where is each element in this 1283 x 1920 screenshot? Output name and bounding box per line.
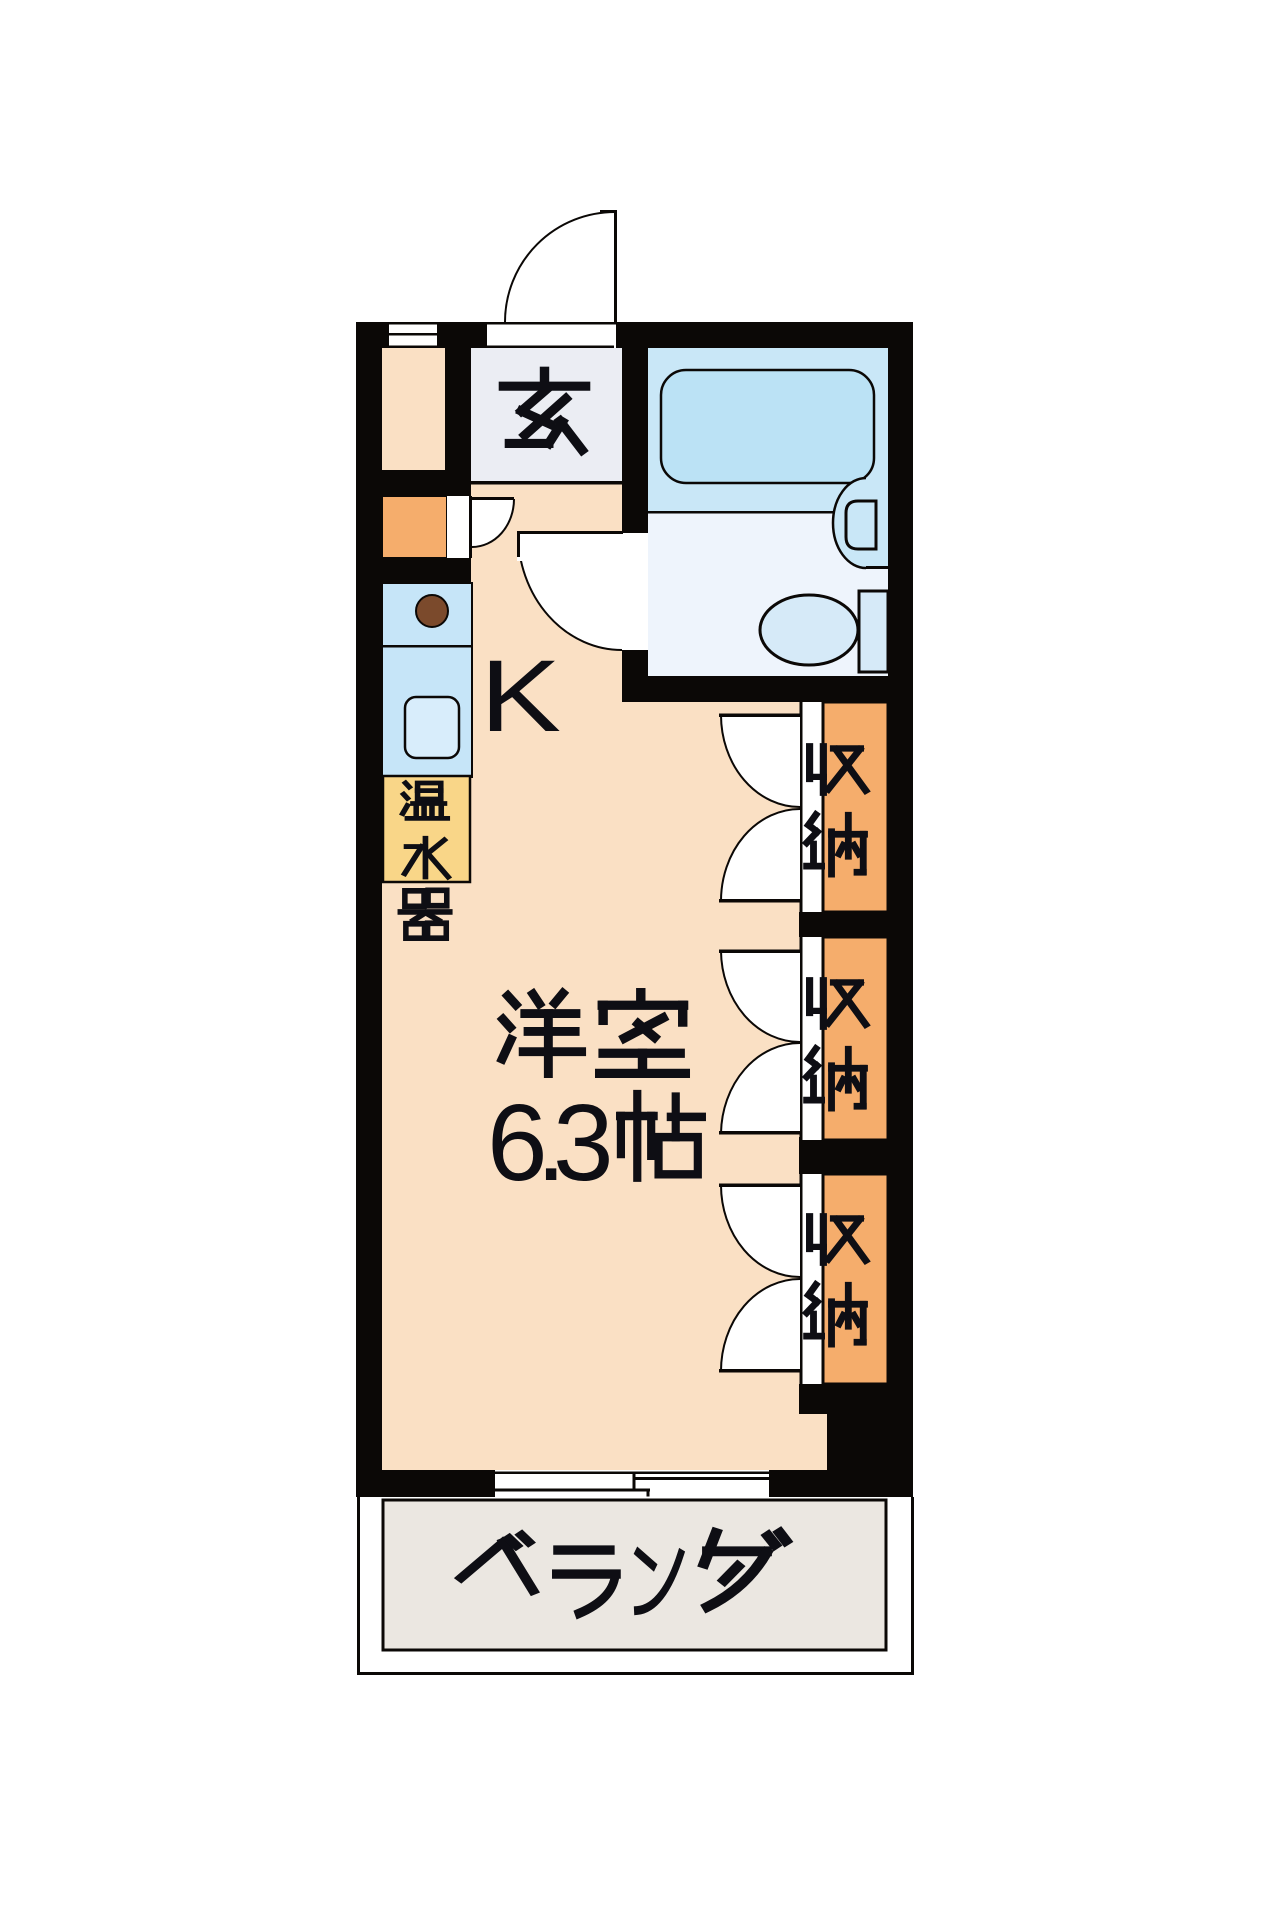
svg-text:K: K	[480, 639, 561, 753]
svg-text:3: 3	[553, 1082, 614, 1204]
